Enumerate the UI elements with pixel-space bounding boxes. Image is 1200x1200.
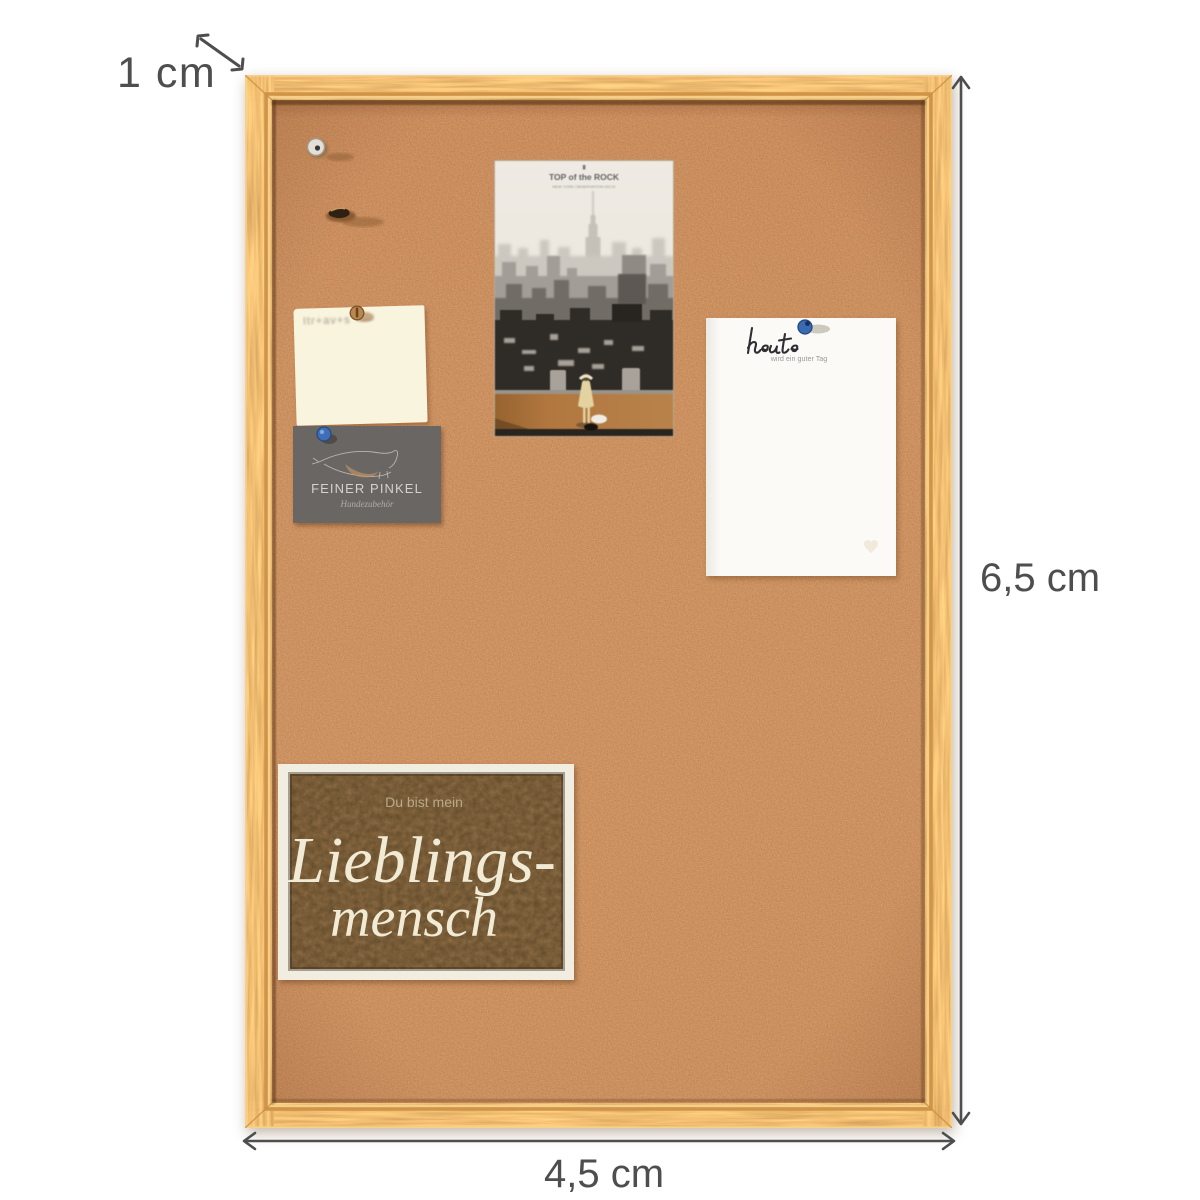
svg-text:FEINER PINKEL: FEINER PINKEL [311, 481, 423, 496]
svg-text:Hundezubehör: Hundezubehör [340, 499, 394, 509]
svg-text:TOP of the ROCK: TOP of the ROCK [549, 172, 620, 182]
svg-text:wird ein guter Tag: wird ein guter Tag [770, 354, 828, 363]
svg-text:Du bist mein: Du bist mein [385, 794, 463, 810]
svg-text:NEW YORK OBSERVATION DECK: NEW YORK OBSERVATION DECK [552, 184, 616, 189]
svg-text:mensch: mensch [330, 887, 498, 949]
